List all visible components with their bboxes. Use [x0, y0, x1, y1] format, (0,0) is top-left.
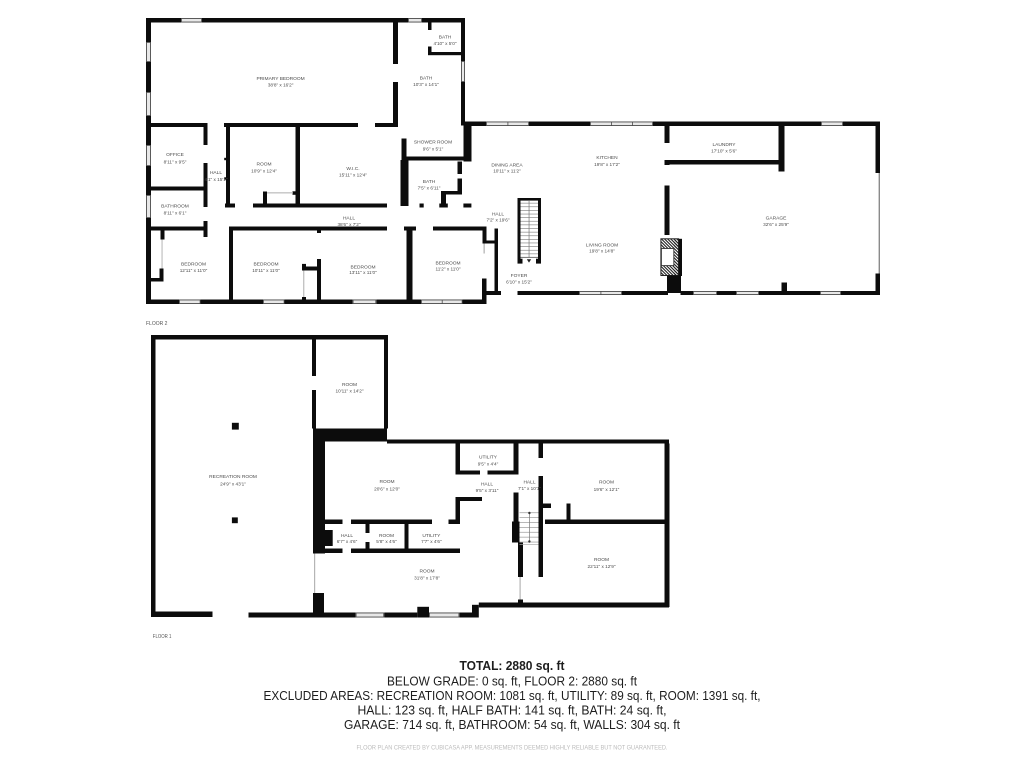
svg-text:UTILITY: UTILITY [422, 533, 441, 539]
svg-text:BATH: BATH [420, 76, 433, 82]
svg-text:15'11" x 12'4": 15'11" x 12'4" [339, 172, 367, 177]
svg-text:GARAGE: 714 sq. ft, BATHROOM:: GARAGE: 714 sq. ft, BATHROOM: 54 sq. ft,… [344, 718, 680, 732]
svg-text:KITCHEN: KITCHEN [596, 155, 618, 161]
svg-text:TOTAL: 2880 sq. ft: TOTAL: 2880 sq. ft [460, 659, 566, 673]
svg-text:GARAGE: GARAGE [766, 216, 787, 222]
svg-text:4'10" x 5'0": 4'10" x 5'0" [433, 41, 456, 46]
svg-text:BEDROOM: BEDROOM [181, 262, 206, 268]
svg-text:10'11" x 11'2": 10'11" x 11'2" [493, 169, 521, 174]
svg-text:22'11" x 12'9": 22'11" x 12'9" [588, 564, 616, 569]
svg-text:10'11" x 11'0": 10'11" x 11'0" [252, 268, 280, 273]
svg-text:9'5" x 3'11": 9'5" x 3'11" [476, 488, 499, 493]
svg-text:HALL: HALL [343, 215, 355, 221]
svg-text:19'6" x 12'1": 19'6" x 12'1" [594, 487, 620, 492]
svg-text:PRIMARY BEDROOM: PRIMARY BEDROOM [256, 76, 304, 82]
svg-text:W.I.C.: W.I.C. [346, 166, 359, 172]
svg-text:ROOM: ROOM [419, 568, 434, 574]
svg-text:RECREATION ROOM: RECREATION ROOM [209, 474, 257, 480]
svg-text:HALL: 123 sq. ft, HALF BATH: 1: HALL: 123 sq. ft, HALF BATH: 141 sq. ft,… [358, 704, 667, 718]
svg-text:ROOM: ROOM [379, 533, 394, 539]
svg-text:BATHROOM: BATHROOM [161, 204, 189, 210]
svg-text:24'9" x 43'1": 24'9" x 43'1" [220, 482, 246, 487]
svg-text:19'8" x 17'2": 19'8" x 17'2" [594, 162, 620, 167]
svg-text:EXCLUDED AREAS: RECREATION ROO: EXCLUDED AREAS: RECREATION ROOM: 1081 sq… [264, 689, 761, 703]
svg-text:10'9" x 12'4": 10'9" x 12'4" [251, 168, 277, 173]
svg-text:6'7" x 4'6": 6'7" x 4'6" [337, 539, 358, 544]
svg-text:4'1" x 15'1": 4'1" x 15'1" [204, 177, 227, 182]
svg-text:7'7" x 4'6": 7'7" x 4'6" [421, 539, 442, 544]
svg-text:BELOW GRADE: 0 sq. ft, FLOOR 2: BELOW GRADE: 0 sq. ft, FLOOR 2: 2880 sq.… [387, 674, 637, 688]
svg-text:ROOM: ROOM [342, 382, 357, 388]
svg-text:LAUNDRY: LAUNDRY [712, 142, 736, 148]
svg-text:ROOM: ROOM [256, 162, 271, 168]
svg-text:31'8" x 17'8": 31'8" x 17'8" [414, 575, 440, 580]
svg-text:38'8" x 16'2": 38'8" x 16'2" [268, 83, 294, 88]
svg-text:HALL: HALL [523, 480, 535, 486]
svg-text:SHOWER ROOM: SHOWER ROOM [414, 140, 452, 146]
svg-text:OFFICE: OFFICE [166, 152, 185, 158]
svg-text:10'11" x 14'2": 10'11" x 14'2" [336, 389, 364, 394]
svg-text:9'5" x 4'4": 9'5" x 4'4" [478, 462, 499, 467]
svg-text:13'11" x 11'0": 13'11" x 11'0" [349, 270, 377, 275]
svg-text:UTILITY: UTILITY [479, 454, 498, 460]
svg-text:FLOOR 2: FLOOR 2 [146, 321, 167, 327]
svg-text:8'11" x 6'1": 8'11" x 6'1" [164, 211, 187, 216]
svg-text:HALL: HALL [481, 481, 493, 487]
svg-text:17'10" x 5'6": 17'10" x 5'6" [711, 149, 737, 154]
svg-text:FLOOR 1: FLOOR 1 [153, 634, 172, 640]
svg-text:BATH: BATH [439, 35, 452, 41]
svg-text:20'6" x 12'0": 20'6" x 12'0" [374, 487, 400, 492]
svg-text:ROOM: ROOM [594, 557, 609, 563]
svg-text:11'2" x 11'0": 11'2" x 11'0" [435, 267, 460, 272]
svg-text:7'1" x 10'1": 7'1" x 10'1" [518, 486, 541, 491]
svg-text:10'3" x 14'1": 10'3" x 14'1" [413, 82, 439, 87]
svg-text:FOYER: FOYER [511, 273, 528, 279]
svg-text:FLOOR PLAN CREATED BY CUBICASA: FLOOR PLAN CREATED BY CUBICASA APP. MEAS… [357, 745, 668, 752]
svg-text:BEDROOM: BEDROOM [253, 262, 278, 268]
svg-text:HALL: HALL [210, 170, 222, 176]
svg-text:12'11" x 11'0": 12'11" x 11'0" [180, 268, 208, 273]
svg-text:38'6" x 7'2": 38'6" x 7'2" [337, 222, 360, 227]
svg-text:7'5" x 6'11": 7'5" x 6'11" [418, 186, 441, 191]
svg-text:5'8" x 4'6": 5'8" x 4'6" [376, 539, 397, 544]
svg-text:BATH: BATH [423, 179, 436, 185]
svg-text:9'6" x 5'1": 9'6" x 5'1" [423, 146, 444, 151]
svg-text:ROOM: ROOM [599, 480, 614, 486]
svg-text:ROOM: ROOM [379, 479, 394, 485]
svg-text:7'2" x 19'6": 7'2" x 19'6" [486, 217, 509, 222]
svg-text:HALL: HALL [341, 533, 353, 539]
svg-text:19'8" x 14'8": 19'8" x 14'8" [589, 248, 615, 253]
svg-text:6'10" x 15'2": 6'10" x 15'2" [506, 279, 532, 284]
svg-text:32'6" x 25'9": 32'6" x 25'9" [763, 222, 789, 227]
svg-text:8'11" x 9'5": 8'11" x 9'5" [164, 160, 187, 165]
